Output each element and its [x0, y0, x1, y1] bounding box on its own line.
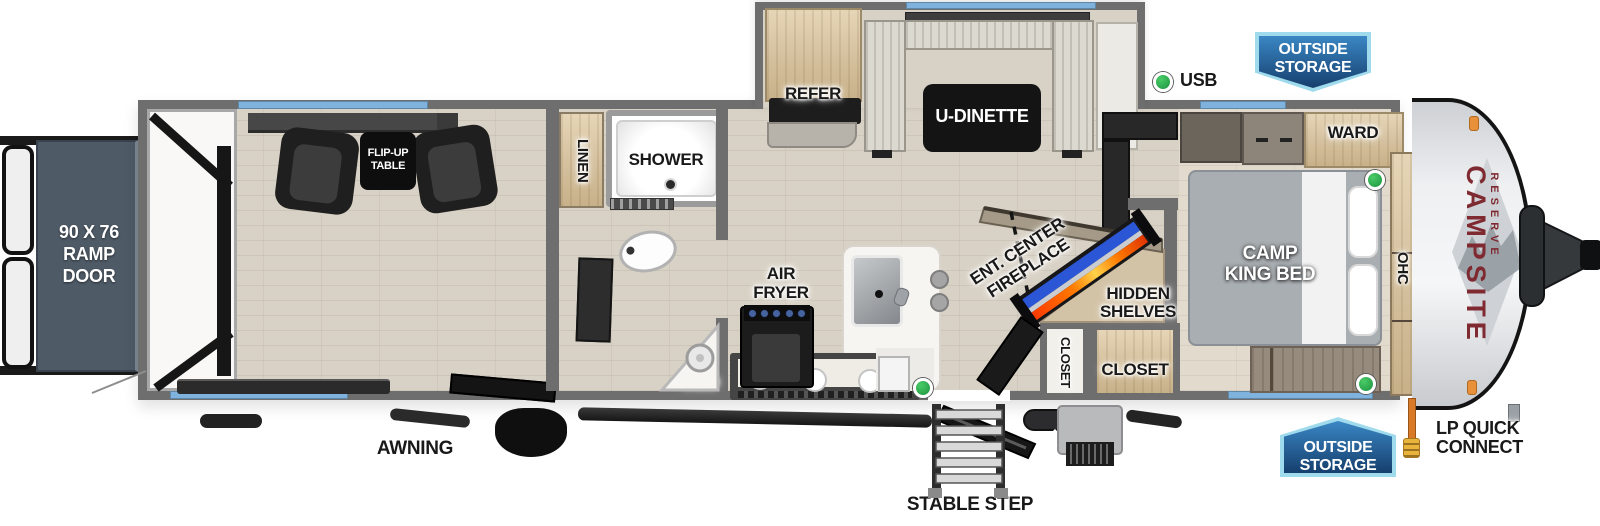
- hidden-shelves-label-line1: HIDDEN: [1092, 284, 1184, 304]
- outside-storage-badge-top: OUTSIDE STORAGE: [1255, 32, 1371, 92]
- pantry-cabinet-top: [1102, 112, 1178, 140]
- burner: [748, 309, 757, 318]
- garage-desk: [248, 113, 458, 133]
- wheel-assembly: [495, 408, 567, 457]
- ramp-door-label-line3: DOOR: [39, 266, 139, 287]
- air-fryer-label-line1: AIR: [741, 264, 821, 284]
- ohc-label: OHC: [1391, 246, 1413, 290]
- usb-marker: [913, 378, 933, 398]
- refer-label: REFER: [768, 84, 858, 104]
- island-cupholder: [930, 293, 949, 312]
- patio-rail-panel: [2, 257, 34, 369]
- shower-drain: [666, 180, 675, 189]
- hidden-shelves-label-line2: SHELVES: [1092, 302, 1184, 322]
- awning-label: AWNING: [355, 438, 475, 460]
- flip-up-table-label-line2: TABLE: [360, 160, 416, 172]
- awning-roller: [578, 407, 932, 427]
- bed-label-line2: KING BED: [1205, 264, 1335, 286]
- lp-quick-connect-label-line2: CONNECT: [1436, 437, 1546, 458]
- outside-storage-top-line2: STORAGE: [1255, 59, 1371, 77]
- furnace-unit: [1024, 406, 1122, 466]
- flip-up-table-label-line1: FLIP-UP: [360, 147, 416, 159]
- bath-kitchen-wall-upper: [716, 109, 728, 240]
- toilet-flush: [626, 246, 635, 255]
- marker-light: [1467, 380, 1477, 395]
- garage-top-window: [238, 101, 428, 109]
- air-fryer-label-line2: FRYER: [741, 283, 821, 303]
- floorplan-stage: 90 X 76 RAMP DOOR U-DINETTE REFER FLIP-U…: [0, 0, 1600, 526]
- usb-marker: [1365, 170, 1385, 190]
- dinette-bench-foot: [1062, 150, 1082, 158]
- dinette-bench-foot: [872, 150, 892, 158]
- stable-step-label: STABLE STEP: [895, 494, 1045, 516]
- usb-marker: [1153, 72, 1173, 92]
- outside-storage-top-line1: OUTSIDE: [1255, 41, 1371, 59]
- brand-series-text: RESERVE: [1486, 156, 1500, 276]
- dinette-bench-right: [1052, 20, 1094, 152]
- range-air-fryer: [740, 306, 814, 388]
- ramp-door-label-line2: RAMP: [39, 244, 139, 265]
- usb-label: USB: [1180, 70, 1224, 91]
- bedroom-cabinet-b: [1242, 112, 1304, 165]
- ramp-door-label-line1: 90 X 76: [39, 222, 139, 243]
- patio-rail-panel: [2, 145, 34, 255]
- shower-door-track: [610, 198, 674, 210]
- ohc-divider: [1392, 320, 1412, 322]
- cabinet-handle: [1280, 138, 1292, 142]
- shower-label: SHOWER: [610, 150, 722, 170]
- bedroom-top-window: [1200, 101, 1286, 109]
- burner: [772, 309, 781, 318]
- garage-bath-wall: [546, 109, 559, 391]
- awning-arm-short: [390, 408, 471, 428]
- u-dinette-label: U-DINETTE: [923, 106, 1041, 127]
- bed-pillow: [1348, 264, 1378, 336]
- burner: [785, 309, 794, 318]
- outside-storage-bottom-line1: OUTSIDE: [1280, 439, 1396, 457]
- oven-front: [752, 334, 800, 382]
- hitch-tongue: [1520, 206, 1600, 306]
- sink-drain: [875, 290, 883, 298]
- dinette-bench-left: [864, 20, 906, 152]
- bed-pillow: [1348, 186, 1378, 258]
- closet-small-label: CLOSET: [1052, 330, 1078, 394]
- garage-chair: [273, 126, 360, 217]
- usb-marker: [1356, 374, 1376, 394]
- chair-cushion: [426, 141, 482, 204]
- bed-label-line1: CAMP: [1205, 243, 1335, 265]
- bar-kick-strip: [738, 391, 912, 398]
- slideout-window: [906, 2, 1096, 9]
- rear-door-frame: [147, 109, 237, 391]
- ward-label: WARD: [1308, 123, 1398, 143]
- awning-arm-right: [1125, 409, 1182, 429]
- stable-step: [928, 404, 1008, 498]
- lp-hose: [1408, 398, 1416, 442]
- cabinet-handle: [1256, 138, 1268, 142]
- bench-divider: [1270, 348, 1273, 391]
- burner: [760, 309, 769, 318]
- linen-label: LINEN: [571, 124, 593, 198]
- closet-large-label: CLOSET: [1088, 360, 1182, 380]
- chair-cushion: [288, 143, 342, 204]
- garage-floor-mat: [177, 379, 390, 394]
- lp-quick-connect-label-line1: LP QUICK: [1436, 418, 1546, 439]
- kitchen-sink: [851, 255, 903, 327]
- stabilizer-bar: [200, 414, 262, 428]
- entry-doorway-gap: [928, 390, 1010, 401]
- lp-connector: [1403, 438, 1420, 458]
- burner: [797, 309, 806, 318]
- entry-door-frame: [878, 356, 910, 392]
- bedroom-cabinet-a: [1180, 112, 1242, 163]
- pantry-cabinet-leg: [1102, 140, 1130, 232]
- bath-cabinet: [576, 257, 614, 342]
- garage-chair: [410, 122, 500, 215]
- island-cupholder: [930, 270, 949, 289]
- refer-counter: [767, 122, 857, 148]
- burner-strip: [744, 305, 810, 321]
- med-label: MED: [670, 373, 730, 393]
- entry-door-panel: [937, 406, 1035, 458]
- outside-storage-bottom-line2: STORAGE: [1280, 457, 1396, 475]
- marker-light: [1469, 116, 1479, 131]
- outside-storage-badge-bottom: OUTSIDE STORAGE: [1280, 417, 1396, 477]
